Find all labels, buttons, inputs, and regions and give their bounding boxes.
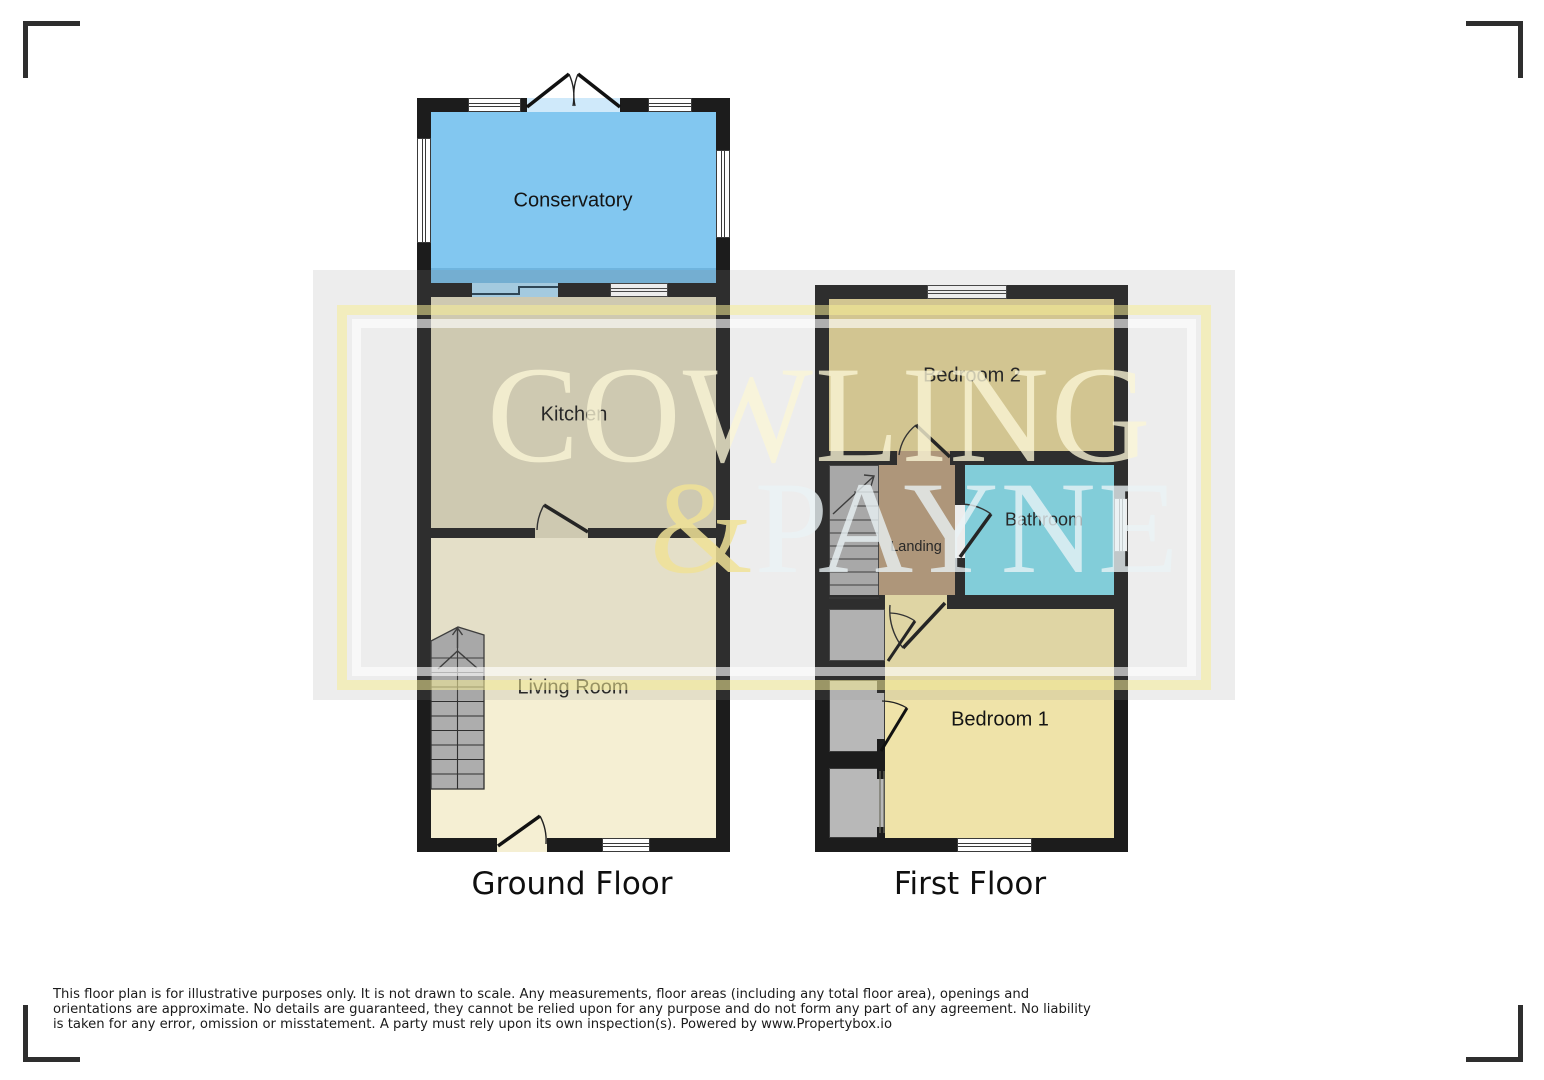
wall — [417, 838, 730, 852]
conservatory-label: Conservatory — [514, 190, 633, 213]
bedroom1-label: Bedroom 1 — [951, 709, 1049, 732]
floor-plan-page: Conservatory Kitchen Living Room Bedroom… — [0, 0, 1544, 1080]
wall — [588, 528, 716, 538]
corner-bracket-top-right — [1466, 21, 1523, 78]
window — [1114, 498, 1128, 552]
wall — [829, 661, 885, 680]
window — [602, 838, 650, 852]
corner-bracket-bottom-right — [1466, 1005, 1523, 1062]
first-floor-stairs — [829, 465, 879, 602]
door-and-stair-symbols — [0, 0, 1544, 1080]
wall — [829, 752, 885, 768]
wall — [877, 739, 885, 752]
wall — [417, 283, 730, 297]
window — [957, 838, 1032, 852]
ground-floor-title: Ground Floor — [471, 866, 672, 902]
window — [927, 285, 1007, 299]
wall — [815, 285, 829, 852]
bedroom2-label: Bedroom 2 — [923, 365, 1021, 388]
wall — [417, 283, 431, 852]
window — [417, 138, 431, 243]
wall — [829, 595, 885, 609]
window — [716, 150, 730, 238]
wall — [716, 283, 730, 852]
wall — [431, 528, 535, 538]
wall — [955, 465, 965, 505]
window — [610, 283, 668, 297]
wall — [947, 595, 1114, 609]
cupboard-top — [829, 609, 885, 661]
wall — [877, 827, 885, 838]
corner-bracket-bottom-left — [23, 1005, 80, 1062]
wall — [829, 451, 897, 465]
sliding-door-gap — [472, 283, 558, 297]
bathroom-label: Bathroom — [1005, 510, 1083, 531]
disclaimer-text: This floor plan is for illustrative purp… — [53, 988, 1091, 1033]
window — [648, 98, 692, 112]
wall — [877, 680, 885, 693]
wall — [1114, 285, 1128, 852]
landing-label: Landing — [890, 539, 942, 555]
front-door-gap — [497, 838, 547, 852]
corner-bracket-top-left — [23, 21, 80, 78]
patio-door-gap — [527, 98, 620, 112]
wall — [950, 451, 1114, 465]
window — [468, 98, 521, 112]
wall — [877, 768, 885, 779]
first-floor-title: First Floor — [894, 866, 1046, 902]
kitchen-label: Kitchen — [541, 404, 608, 427]
landing-room — [879, 451, 955, 609]
living-room-label: Living Room — [517, 677, 628, 700]
